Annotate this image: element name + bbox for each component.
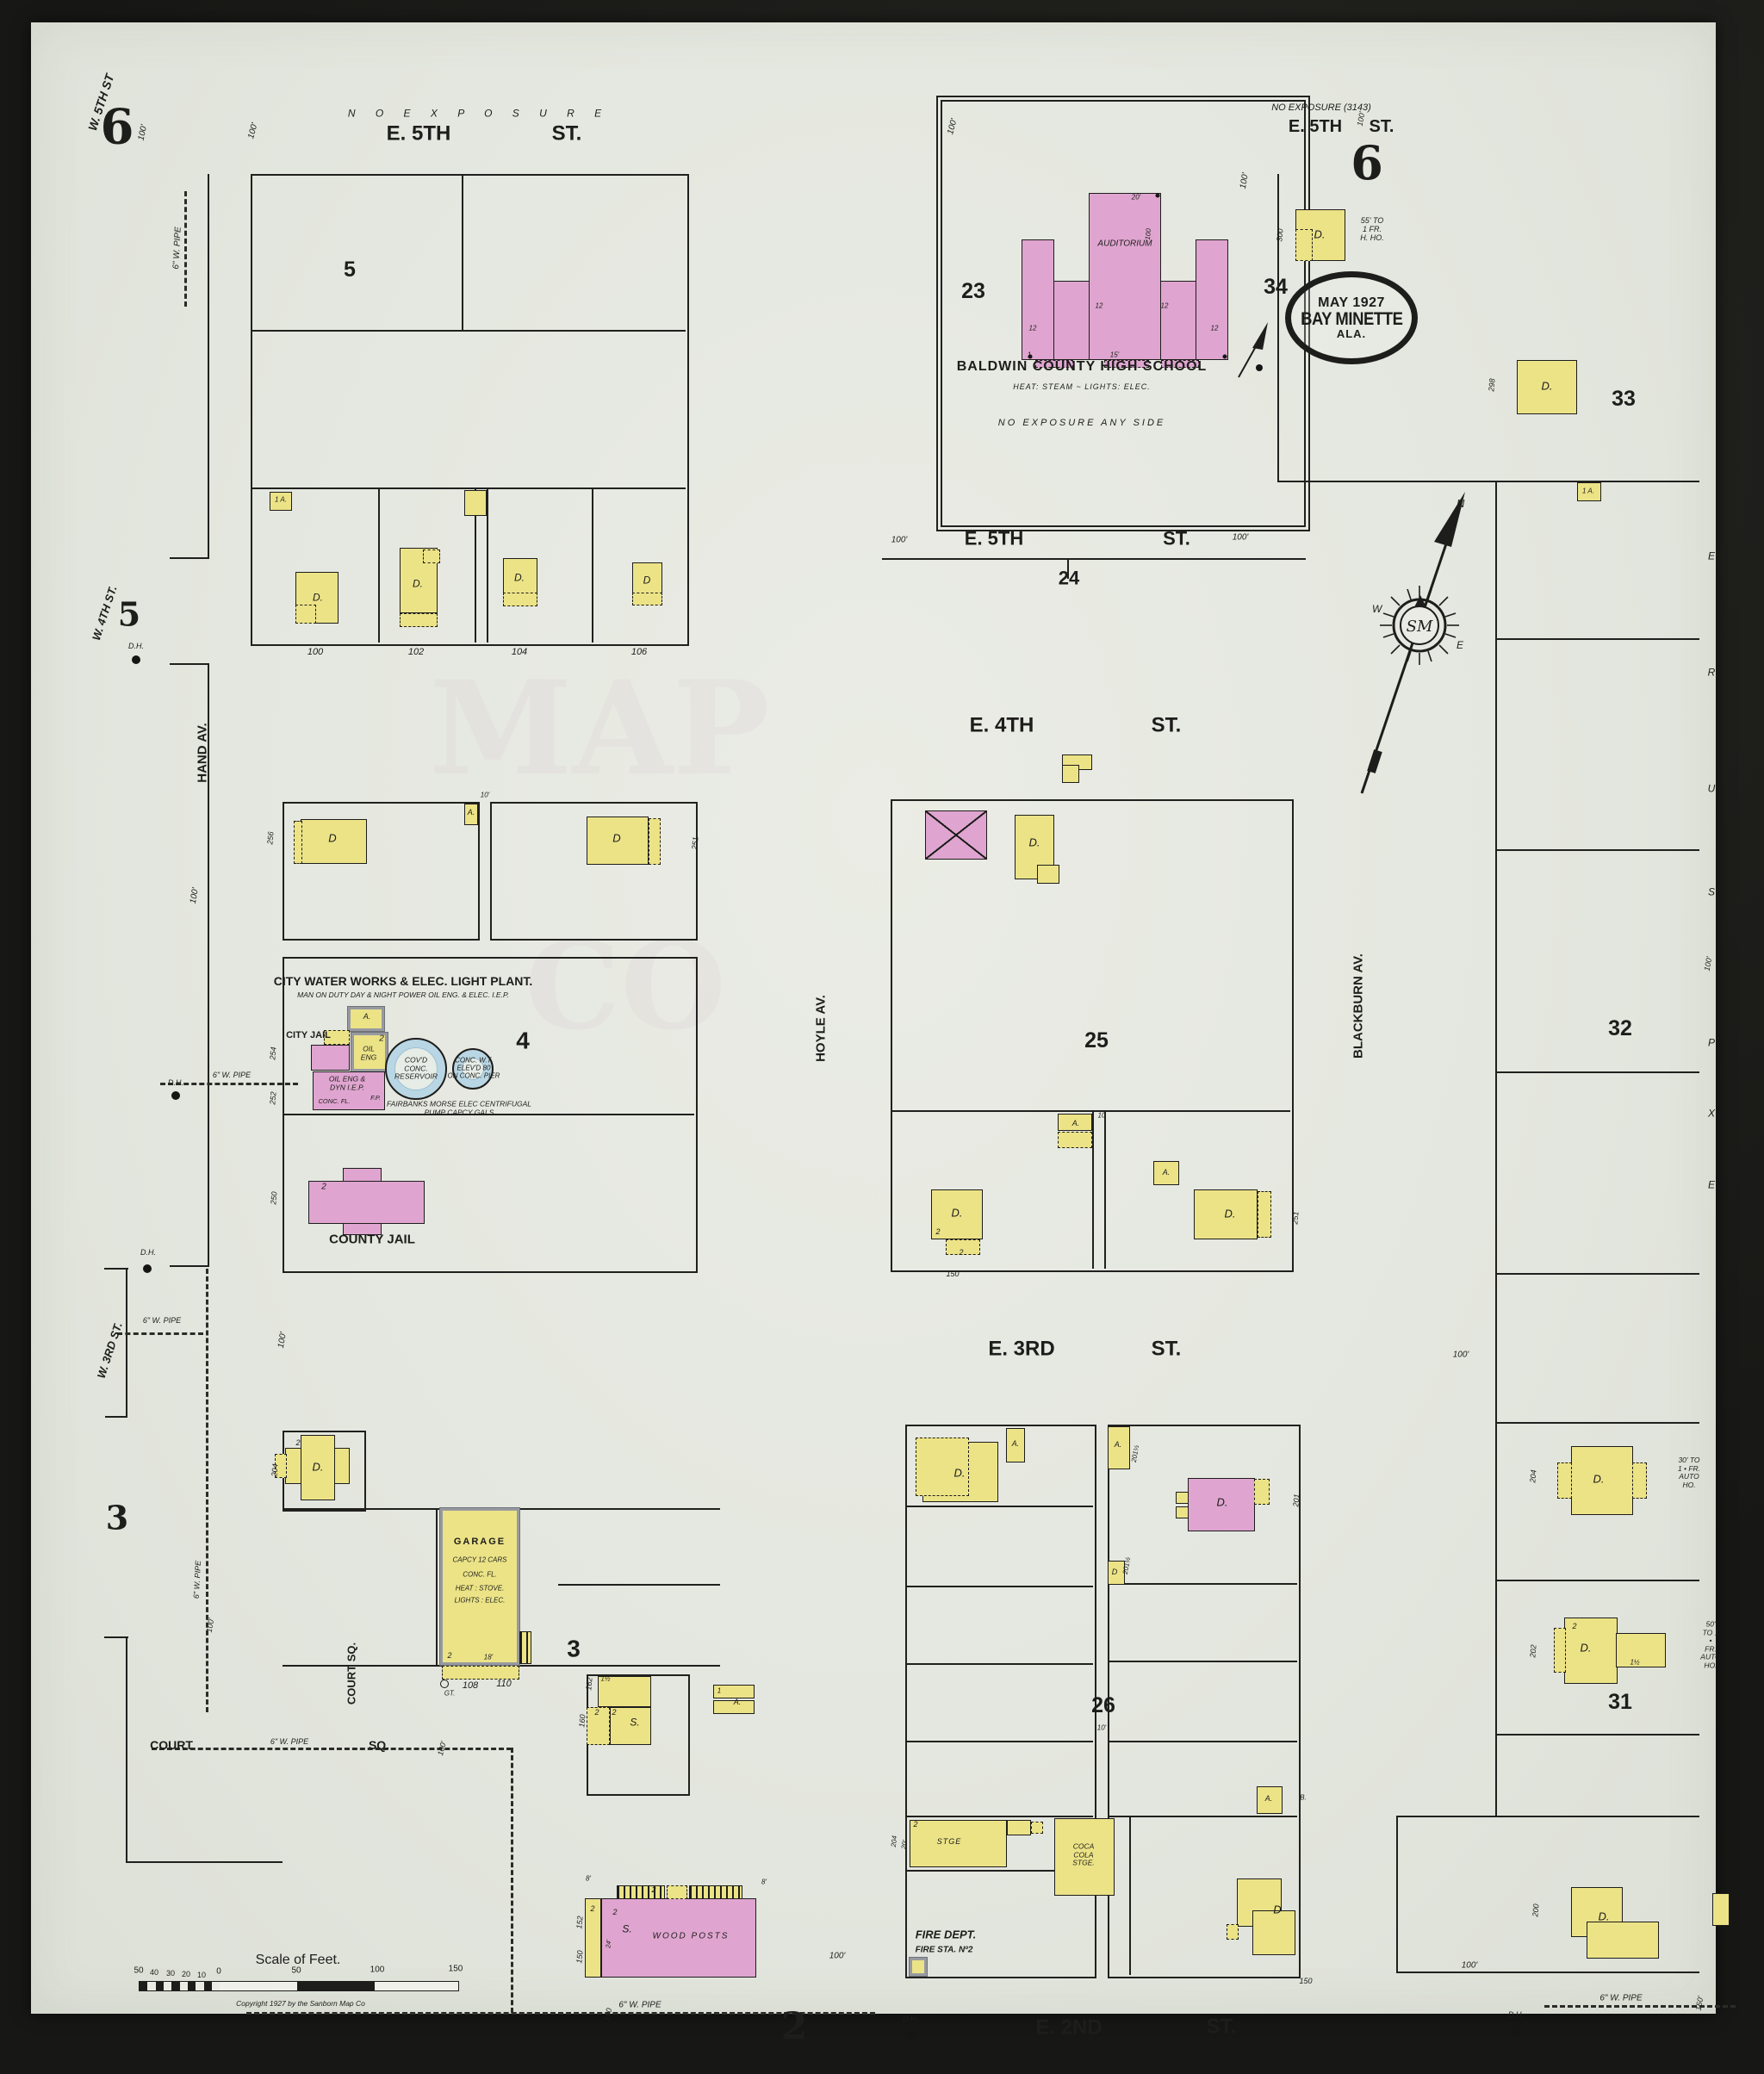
dim: 12 (1096, 303, 1103, 311)
landmark-county-jail: COUNTY JAIL (329, 1233, 415, 1248)
building (1176, 1492, 1189, 1504)
margin-letter: E (1708, 550, 1715, 562)
street-e-3rd: E. 3RD (988, 1338, 1054, 1362)
pump-note: FAIRBANKS MORSE ELEC CENTRIFUGAL PUMP CA… (387, 1100, 531, 1116)
bldg-label-dwelling: D (1112, 1568, 1118, 1576)
lot-line (905, 1816, 1093, 1817)
lot-line (891, 1110, 1290, 1112)
street-e-5th: E. 5TH (387, 123, 451, 146)
building (667, 1885, 687, 1899)
dim: 110 (496, 1679, 512, 1689)
street-e-5th-r: E. 5TH (1289, 117, 1342, 136)
bldg-label-dwelling: D. (1581, 1642, 1592, 1655)
map-paper: MAPCO W. 5TH ST6100'6" W. PIPEN O E X P … (31, 22, 1716, 2014)
scale-tick: 0 (216, 1966, 221, 1976)
block-number-25: 25 (1084, 1028, 1109, 1053)
scale-bar (139, 1981, 459, 1991)
building (1062, 765, 1079, 783)
pipe-label: 6" W. PIPE (143, 1316, 181, 1325)
dim: 12 (1029, 326, 1037, 333)
building (295, 605, 316, 624)
bldg-label: A. (363, 1012, 371, 1021)
sheet-ref-5: 5 (118, 597, 140, 634)
school-auditorium (1089, 193, 1161, 360)
lot-line (378, 487, 380, 643)
hydrant-dot (905, 2029, 916, 2040)
block-number-5: 5 (344, 258, 356, 282)
sheet-number-left: 6 (101, 101, 134, 155)
scale-tick: 10 (197, 1971, 206, 1979)
building (1295, 229, 1313, 261)
building (1254, 1479, 1270, 1505)
dim: 100' (205, 1618, 216, 1633)
bldg-label: A. (1115, 1440, 1122, 1449)
margin-letter: R (1708, 667, 1716, 678)
lot-line (1108, 1741, 1297, 1742)
badge-state: ALA. (1337, 328, 1366, 339)
building (1557, 1462, 1572, 1499)
dim: 2 (321, 1182, 326, 1191)
watermark: MAP (429, 656, 769, 801)
lot-line (170, 663, 209, 665)
sanborn-map-sheet: MAPCO W. 5TH ST6100'6" W. PIPEN O E X P … (0, 0, 1764, 2074)
dim: 252 (268, 1091, 277, 1105)
dim: 150' (1694, 1996, 1705, 2011)
lot-line (126, 1861, 283, 1863)
sheet-number-right: 6 (1351, 137, 1383, 189)
water-pipe-line (117, 1332, 203, 1335)
scale-tick: 40 (150, 1968, 158, 1977)
lot-line (104, 1636, 128, 1638)
pipe-label: 6" W. PIPE (1599, 1993, 1642, 2003)
lot-line (1495, 1580, 1699, 1581)
lot-line (1108, 1661, 1297, 1662)
building (1037, 865, 1059, 884)
dim: 20' (901, 1840, 910, 1850)
building (1616, 1633, 1666, 1667)
building (1554, 1628, 1566, 1673)
bldg-note: CONC. FL. (318, 1098, 350, 1105)
dim: 2 (590, 1904, 594, 1913)
hydrant-label: D.H. (140, 1248, 156, 1257)
landmark-waterworks: CITY WATER WORKS & ELEC. LIGHT PLANT. (274, 975, 532, 989)
lot-line (1108, 1583, 1297, 1585)
school-note: HEAT: STEAM ~ LIGHTS: ELEC. (1013, 382, 1150, 391)
lot-line (1129, 1816, 1131, 1975)
bldg-label-dwelling: D. (954, 1468, 966, 1481)
dim: 2 (1572, 1622, 1576, 1630)
bldg-label-store: S. (630, 1717, 639, 1728)
city-jail-bldg (311, 1045, 350, 1071)
water-pipe-line (1544, 2005, 1736, 2008)
school-left-wing (1022, 239, 1054, 360)
dim: 2 (295, 1438, 300, 1447)
lot-line (126, 1636, 127, 1862)
dim: 100 (1145, 228, 1153, 240)
dim: 251 (1290, 1211, 1300, 1225)
block-number-33: 33 (1612, 387, 1636, 411)
bldg-label: A. (468, 808, 475, 817)
scale-tick: 150 (449, 1964, 463, 1973)
bldg-label-store: S. (622, 1923, 631, 1934)
dim: 150 (1299, 1977, 1312, 1985)
bldg-label: OIL ENG & DYN I.E.P. (329, 1075, 365, 1091)
pipe-label: 6" W. PIPE (270, 1737, 308, 1746)
block-number-4: 4 (516, 1027, 530, 1053)
street-w-4th: W. 4TH ST. (90, 584, 120, 642)
lot-line (592, 487, 593, 643)
dim: 1 (1028, 352, 1031, 360)
dim: 108 (463, 1680, 478, 1691)
building (503, 593, 537, 606)
water-pipe-line (206, 1269, 208, 1712)
dim: 12 (1211, 326, 1219, 333)
dim: 100 (603, 2008, 614, 2022)
lot-line (882, 558, 1306, 560)
hydrant-label: D.H. (168, 1078, 183, 1087)
bldg-label: A. (734, 1698, 742, 1706)
lot-line (1495, 1273, 1699, 1275)
dim: 100' (1233, 532, 1249, 542)
dim: 150 (575, 1950, 584, 1964)
block-number-23: 23 (961, 279, 985, 303)
dim: 1½ (1630, 1660, 1639, 1667)
hydrant-dot (1511, 2026, 1521, 2036)
dim: 2 (959, 1248, 963, 1257)
note: 30' TO 1 • FR. AUTO HO. (1676, 1456, 1703, 1489)
bldg-label-dwelling: D. (1593, 1474, 1605, 1487)
bldg-label-dwelling: D (643, 574, 651, 586)
lot-number: 100 (307, 647, 323, 657)
lot-line (905, 1586, 1093, 1587)
margin-letter: U (1708, 783, 1716, 794)
bldg-label-dwelling: D. (313, 592, 323, 603)
sheet-ref-3: 3 (106, 1500, 128, 1537)
bldg-label: OIL ENG (361, 1045, 376, 1061)
lot-number: 102 (408, 647, 424, 657)
dim: 100' (276, 1332, 289, 1349)
building (1632, 1462, 1647, 1499)
dim: 204 (270, 1463, 279, 1477)
bldg-label: A. (1012, 1439, 1020, 1448)
dim: 2 (379, 1034, 384, 1043)
street-court-sq: SQ. (369, 1739, 389, 1753)
street-e-4th: E. 4TH (970, 715, 1034, 738)
garage-note: CONC. FL. (463, 1572, 497, 1580)
bldg-label-dwelling: D. (1217, 1497, 1228, 1510)
note: GT. (444, 1691, 456, 1698)
bldg-label-storage: STGE (937, 1837, 962, 1846)
dim: 100' (246, 122, 260, 140)
dim: 1 (717, 1688, 721, 1696)
bldg-label-dwelling: D. (313, 1462, 324, 1475)
street-e-2nd-st: ST. (1207, 2016, 1237, 2040)
building (1058, 1132, 1092, 1148)
lot-line (1495, 1734, 1699, 1736)
street-e-3rd-st: ST. (1152, 1338, 1182, 1362)
lot-line (436, 1508, 438, 1665)
dim: 100' (829, 1951, 846, 1960)
pipe-label: 6" W. PIPE (171, 227, 183, 270)
dim: 100' (189, 887, 201, 904)
dim: 24' (605, 1940, 612, 1948)
landmark-school: BALDWIN COUNTY HIGH SCHOOL (957, 359, 1208, 375)
dim: 2 (612, 1908, 617, 1916)
bldg-label-dwelling: D. (1542, 381, 1553, 394)
pipe-label: 6" W. PIPE (192, 1561, 202, 1599)
bldg-label: 1 A. (275, 497, 287, 505)
scale-tick: 100 (370, 1965, 385, 1974)
exposure-top-right: NO EXPOSURE (3143) (1271, 102, 1371, 113)
bldg-label-dwelling: D (612, 833, 620, 846)
dim: 250 (269, 1191, 278, 1205)
dim: 251 (690, 836, 699, 850)
street-w-3rd: W. 3RD ST. (96, 1321, 126, 1381)
water-pipe-line (511, 1748, 513, 2013)
lot-line (170, 1265, 209, 1267)
bldg-label-dwelling: D. (1225, 1208, 1236, 1221)
scale-tick: 50 (134, 1965, 143, 1975)
scale-tick: 30 (166, 1969, 175, 1978)
dim: 204 (891, 1835, 899, 1847)
dim: 150 (946, 1270, 959, 1278)
dim: 162 (584, 1677, 593, 1691)
lot-line (1495, 1422, 1699, 1424)
copyright-line: Copyright 1927 by the Sanborn Map Co (236, 2000, 365, 2009)
margin-letter: E (1708, 1179, 1715, 1190)
gasoline-tank-dot (440, 1680, 449, 1688)
dim: 160 (577, 1714, 587, 1728)
compass-e: E (1457, 639, 1464, 651)
lot-number: 106 (631, 647, 647, 657)
reservoir-label: COV'D CONC. RESERVOIR (394, 1057, 438, 1082)
lot-line (1108, 1816, 1297, 1817)
dim: 1½ (600, 1676, 610, 1684)
bldg-label-dwelling: D. (1029, 837, 1040, 850)
street-e-2nd: E. 2ND (1035, 2017, 1102, 2040)
badge-city: BAY MINETTE (1301, 310, 1402, 328)
school-note2: NO EXPOSURE ANY SIDE (998, 418, 1165, 428)
compass-rose-icon: SM N W E (1319, 466, 1500, 810)
landmark-fire-dept: FIRE DEPT. (916, 1929, 977, 1942)
bldg-label-dwelling: D. (514, 572, 525, 583)
dim: 202 (1528, 1644, 1537, 1658)
lot-line (1092, 1110, 1094, 1269)
dim: 15' (1110, 352, 1119, 360)
building (632, 593, 662, 605)
lot-line (1396, 1972, 1699, 1973)
lot-line (487, 487, 488, 643)
dim: 298 (1487, 378, 1496, 392)
block-number-32: 32 (1608, 1016, 1632, 1040)
lot-line (462, 174, 463, 332)
north-arrow-icon (1228, 315, 1280, 384)
lot-line (1396, 1816, 1398, 1972)
scale-title: Scale of Feet. (256, 1953, 341, 1968)
dim: 100' (1462, 1960, 1478, 1970)
lot-number: 104 (512, 647, 527, 657)
hydrant-dot (132, 655, 140, 664)
water-pipe-line (184, 191, 187, 307)
dim: 100' (1356, 111, 1367, 127)
building (1007, 1820, 1031, 1835)
bldg-label: A. (1072, 1119, 1080, 1127)
dim: 8' (761, 1879, 767, 1887)
pipe-label: 6" W. PIPE (618, 2000, 661, 2009)
dim: 10 (1098, 1113, 1106, 1121)
building (442, 1666, 519, 1680)
lot-line (1495, 638, 1699, 640)
lot-line (905, 1741, 1093, 1742)
bldg-label-dwelling: D. (1314, 229, 1326, 242)
dim: 100' (436, 1741, 448, 1757)
block-number-34: 34 (1264, 275, 1288, 299)
dim: 200 (1531, 1903, 1540, 1917)
bldg-label-auditorium: AUDITORIUM (1097, 239, 1152, 248)
building (1176, 1506, 1189, 1518)
lot-line (1495, 1071, 1699, 1073)
landmark-city-jail: CITY JAIL (286, 1030, 331, 1040)
street-hand-av: HAND AV. (196, 723, 211, 782)
margin-letter: P (1708, 1037, 1715, 1048)
map-title-badge: MAY 1927 BAY MINETTE ALA. (1285, 271, 1418, 364)
building (1031, 1822, 1043, 1834)
lot-line (1104, 1110, 1106, 1269)
street-e-4th-st: ST. (1152, 715, 1182, 738)
dim: 100' (891, 535, 908, 544)
dim: 2 (594, 1708, 599, 1717)
building (294, 821, 302, 864)
bldg-label: A. (1265, 1794, 1273, 1803)
garage-note: CAPCY 12 CARS (453, 1557, 507, 1565)
street-e-5th-r-st: ST. (1370, 117, 1394, 136)
street-e-5th-south-st: ST. (1163, 529, 1190, 550)
lot-line (251, 330, 686, 332)
landmark-fire-station: FIRE STA. Nº2 (916, 1945, 973, 1954)
margin-letter: X (1708, 1108, 1715, 1119)
lot-line (1396, 1816, 1699, 1817)
hydrant-dot (1223, 355, 1227, 359)
building (423, 550, 440, 563)
building (617, 1885, 665, 1899)
building (649, 818, 661, 865)
dim: 10' (1097, 1725, 1106, 1733)
bldg-label: B. (1300, 1795, 1307, 1803)
lot-line (905, 1506, 1093, 1507)
sheet-ref-2: 2 (781, 2005, 808, 2047)
fire-station-bldg (910, 1958, 927, 1976)
dim: 2 (651, 1885, 655, 1894)
building (519, 1631, 531, 1664)
block-number-31: 31 (1608, 1690, 1632, 1714)
compass-monogram: SM (1407, 618, 1433, 636)
note: 50' TO 1 • FR. AUTO HO. (1700, 1620, 1720, 1669)
street-blackburn-av: BLACKBURN AV. (1352, 953, 1367, 1059)
dim: 254 (268, 1046, 277, 1060)
bldg-label-coca-cola: COCA COLA STGE. (1072, 1843, 1095, 1868)
lot-line (905, 1663, 1093, 1665)
lot-line (558, 1584, 720, 1586)
exposure-top-left: N O E X P O S U R E (348, 108, 610, 119)
dim: 201 (1291, 1493, 1301, 1507)
bldg-label-dwelling: D. (952, 1208, 963, 1220)
dim: 10' (481, 792, 489, 800)
compass-n: N (1457, 497, 1465, 510)
block-number-26: 26 (1091, 1693, 1115, 1717)
street-court-sq-vert: COURT SQ. (346, 1642, 359, 1705)
garage-note: LIGHTS : ELEC. (455, 1598, 506, 1605)
pipe-label: 6" W. PIPE (213, 1071, 251, 1079)
hydrant-label: D.H. (903, 2015, 918, 2023)
building (464, 490, 487, 516)
compass-w: W (1372, 603, 1383, 615)
lot-line (105, 1416, 127, 1418)
lot-line (170, 557, 209, 559)
street-e-5th-st: ST. (552, 123, 582, 146)
dim: 100' (1703, 956, 1714, 972)
hydrant-dot (1156, 194, 1160, 198)
bldg-label: 1 A. (1582, 488, 1594, 496)
hydrant-dot (143, 1264, 152, 1273)
water-pipe-line (152, 1748, 512, 1750)
bldg-label-dwelling: D. (1599, 1911, 1610, 1924)
street-e-5th-south: E. 5TH (965, 529, 1023, 550)
landmark-garage: GARAGE (454, 1537, 506, 1547)
dim: 2 (447, 1651, 451, 1660)
hydrant-label: D.H. (1508, 2010, 1524, 2019)
school-right-wing (1196, 239, 1228, 360)
lot-line (208, 174, 209, 559)
lot-line (1495, 849, 1699, 851)
dim: 8' (586, 1876, 591, 1884)
dim: 100' (137, 124, 150, 142)
badge-date: MAY 1927 (1318, 296, 1385, 310)
dim: 20' (1132, 195, 1140, 202)
hydrant-label: D.H. (128, 642, 144, 650)
building (689, 1885, 742, 1899)
scale-tick: 20 (182, 1970, 190, 1978)
dim: 300 (1275, 228, 1284, 242)
waterworks-note: MAN ON DUTY DAY & NIGHT POWER OIL ENG. &… (297, 991, 509, 1000)
bldg-note-wood-posts: WOOD POSTS (653, 1931, 730, 1940)
building (1587, 1922, 1659, 1959)
margin-letter: S (1708, 886, 1715, 897)
dim: 2 (935, 1227, 940, 1236)
x-building (925, 810, 987, 860)
dim: 12 (1161, 303, 1169, 311)
dim: 18' (484, 1655, 493, 1662)
bldg-label-dwelling: D (1273, 1904, 1281, 1917)
bldg-note: F.P. (370, 1095, 381, 1102)
dim: 2 (913, 1820, 917, 1829)
building (1227, 1924, 1239, 1940)
building (1252, 1910, 1295, 1955)
block-number-24: 24 (1059, 568, 1079, 590)
dim: 256 (265, 831, 275, 845)
note: 55' TO 1 FR. H. HO. (1360, 216, 1384, 242)
building (1258, 1191, 1271, 1238)
street-court: COURT (150, 1739, 193, 1753)
block-number-3: 3 (567, 1635, 581, 1661)
bldg-label: A. (1163, 1168, 1171, 1177)
building (400, 613, 438, 627)
bldg-label-dwelling: D. (413, 578, 423, 589)
street-hoyle-av: HOYLE AV. (815, 995, 829, 1062)
dim: 204 (1528, 1469, 1537, 1483)
bldg-label-dwelling: D (328, 833, 336, 846)
dim: 2 (612, 1708, 616, 1717)
lot-line (126, 1268, 127, 1418)
